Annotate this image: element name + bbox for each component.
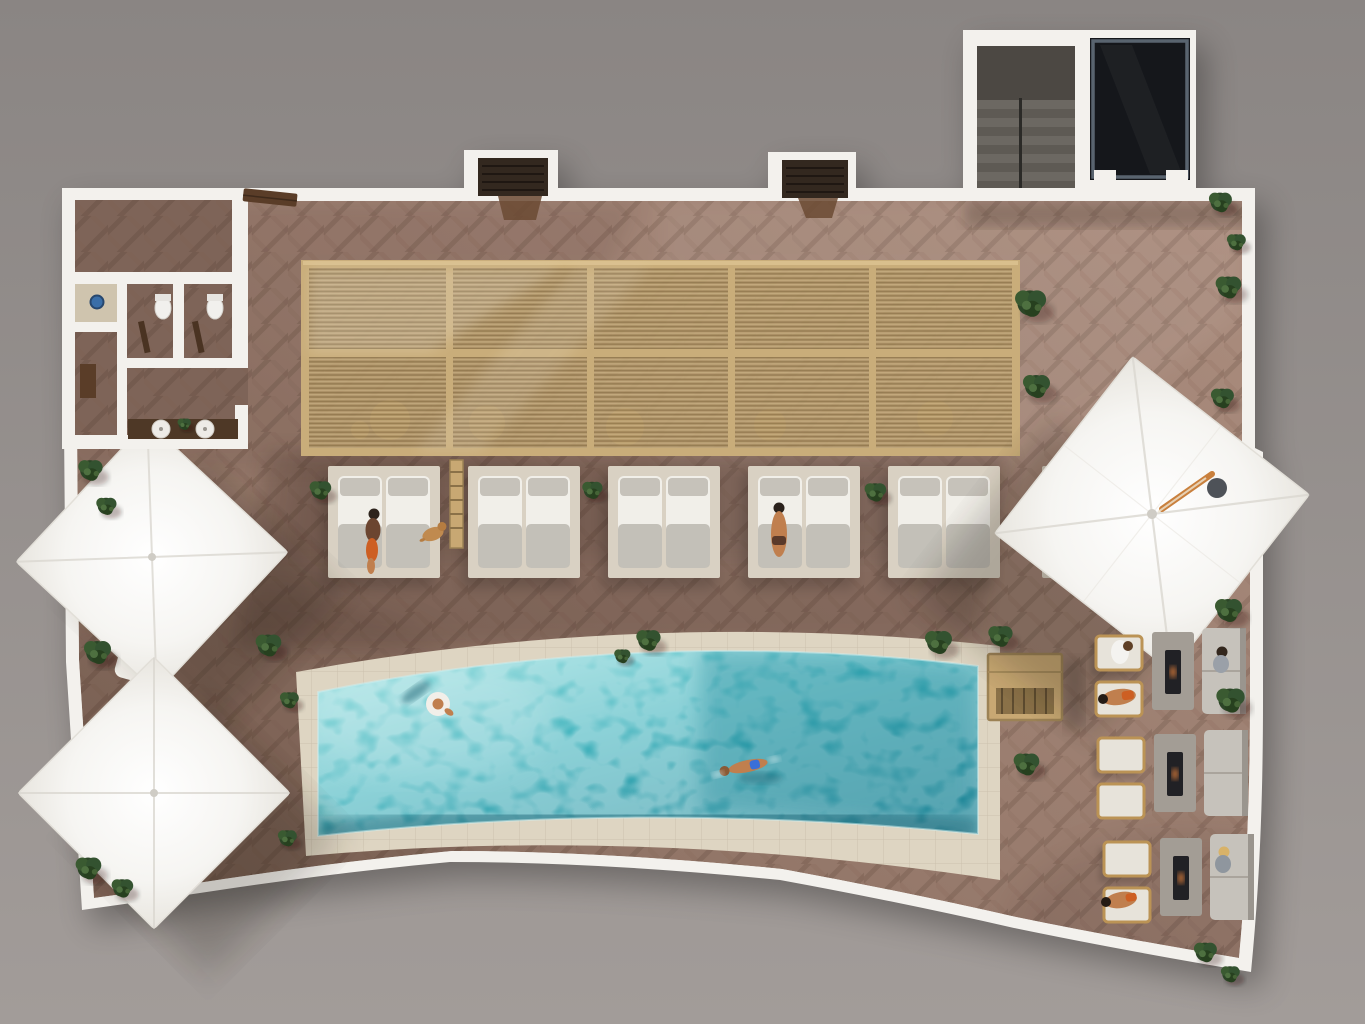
fire-pit-lounges bbox=[1091, 628, 1254, 922]
daybed bbox=[742, 466, 860, 588]
stair-treads bbox=[977, 100, 1075, 188]
lounge-group bbox=[1099, 834, 1254, 922]
daybed bbox=[602, 466, 720, 588]
render-canvas bbox=[0, 0, 1365, 1024]
daybed bbox=[462, 466, 580, 588]
shower-head bbox=[91, 296, 104, 309]
bench bbox=[80, 364, 96, 398]
stair-rail bbox=[1019, 98, 1022, 188]
pergola-canopy bbox=[303, 261, 1018, 452]
armchair bbox=[1098, 784, 1144, 818]
daybed bbox=[322, 466, 440, 588]
lounge-group bbox=[1093, 730, 1248, 818]
pool-deck-scene bbox=[0, 0, 1365, 1024]
restroom-block bbox=[62, 188, 248, 449]
beanbag-chair bbox=[1207, 478, 1227, 498]
wood-ladder-post bbox=[450, 460, 463, 548]
armchair bbox=[1098, 738, 1144, 772]
armchair bbox=[1104, 842, 1150, 876]
